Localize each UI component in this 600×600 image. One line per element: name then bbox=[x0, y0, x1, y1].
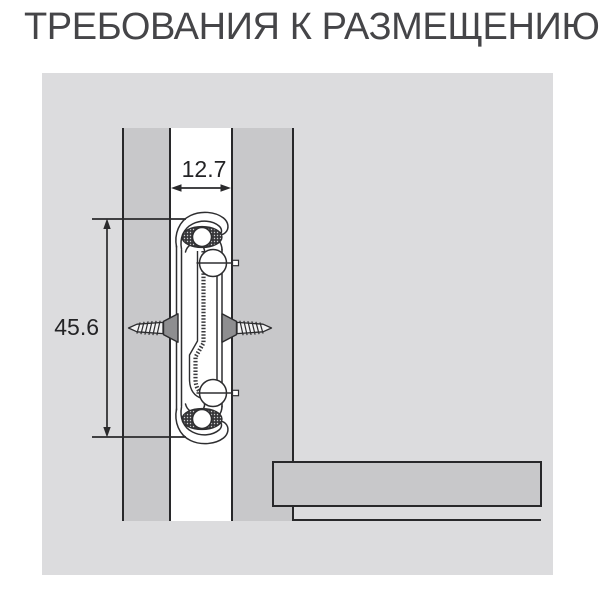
gap-width-label: 12.7 bbox=[182, 156, 227, 182]
screenshot-root: ТРЕБОВАНИЯ К РАЗМЕЩЕНИЮ bbox=[0, 0, 600, 600]
slide-height-label: 45.6 bbox=[54, 314, 99, 340]
bottom-shelf-panel bbox=[273, 462, 541, 506]
placement-diagram: 12.7 45.6 bbox=[0, 0, 600, 600]
